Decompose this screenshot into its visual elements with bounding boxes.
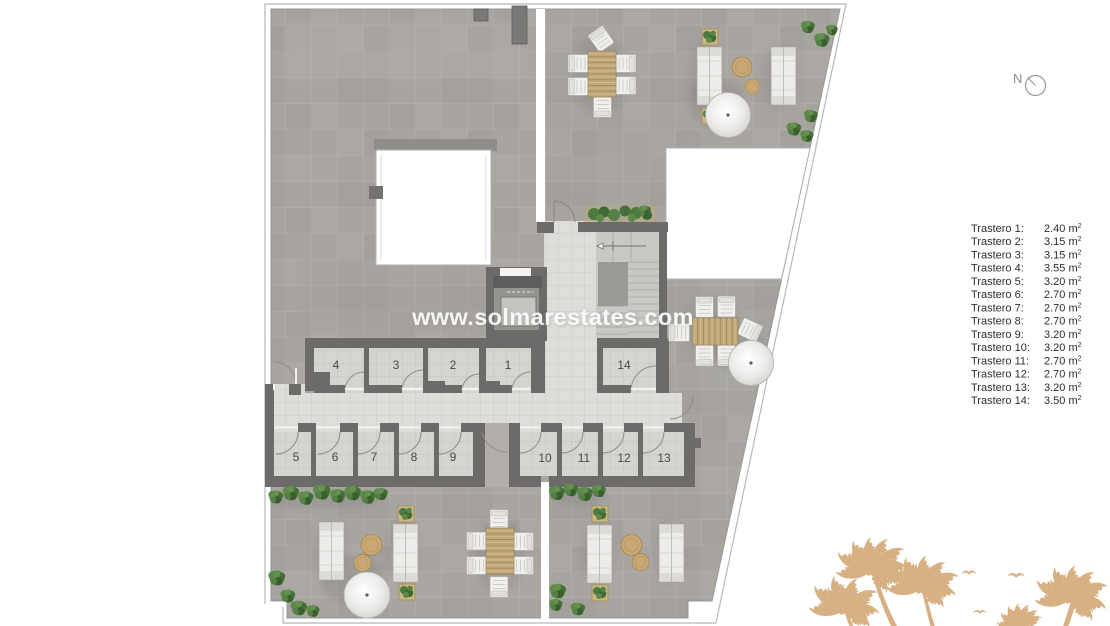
svg-text:2.70 m2: 2.70 m2: [1044, 369, 1082, 381]
svg-text:Trastero 4:: Trastero 4:: [971, 263, 1024, 275]
svg-text:Trastero 1:: Trastero 1:: [971, 223, 1024, 235]
svg-text:5: 5: [293, 450, 300, 464]
svg-text:2: 2: [450, 358, 457, 372]
svg-text:Trastero 10:: Trastero 10:: [971, 342, 1030, 354]
svg-text:www.solmarestates.com: www.solmarestates.com: [411, 304, 694, 330]
svg-text:7: 7: [371, 450, 378, 464]
svg-text:2.70 m2: 2.70 m2: [1044, 289, 1082, 301]
svg-text:8: 8: [411, 450, 418, 464]
svg-text:9: 9: [450, 450, 457, 464]
svg-text:3.20 m2: 3.20 m2: [1044, 276, 1082, 288]
svg-text:Trastero 14:: Trastero 14:: [971, 395, 1030, 407]
svg-text:13: 13: [657, 451, 671, 465]
svg-text:N: N: [1013, 71, 1022, 86]
svg-text:3.20 m2: 3.20 m2: [1044, 329, 1082, 341]
svg-text:14: 14: [617, 358, 631, 372]
svg-text:Trastero 7:: Trastero 7:: [971, 302, 1024, 314]
svg-text:3.20 m2: 3.20 m2: [1044, 382, 1082, 394]
svg-text:Trastero 12:: Trastero 12:: [971, 369, 1030, 381]
svg-text:3.55 m2: 3.55 m2: [1044, 263, 1082, 275]
svg-text:2.70 m2: 2.70 m2: [1044, 302, 1082, 314]
svg-text:Trastero 3:: Trastero 3:: [971, 250, 1024, 262]
svg-text:3.50 m2: 3.50 m2: [1044, 395, 1082, 407]
svg-text:11: 11: [578, 451, 591, 465]
svg-text:2.40 m2: 2.40 m2: [1044, 223, 1082, 235]
svg-text:3.15 m2: 3.15 m2: [1044, 236, 1082, 248]
svg-text:4: 4: [333, 358, 340, 372]
svg-text:Trastero 5:: Trastero 5:: [971, 276, 1024, 288]
svg-text:1: 1: [505, 358, 512, 372]
svg-text:Trastero 2:: Trastero 2:: [971, 236, 1024, 248]
svg-text:12: 12: [617, 451, 631, 465]
svg-text:3.15 m2: 3.15 m2: [1044, 250, 1082, 262]
svg-text:10: 10: [538, 451, 552, 465]
svg-text:3.20 m2: 3.20 m2: [1044, 342, 1082, 354]
svg-text:Trastero 9:: Trastero 9:: [971, 329, 1024, 341]
svg-text:2.70 m2: 2.70 m2: [1044, 355, 1082, 367]
svg-text:2.70 m2: 2.70 m2: [1044, 316, 1082, 328]
svg-text:Trastero 6:: Trastero 6:: [971, 289, 1024, 301]
svg-text:Trastero 8:: Trastero 8:: [971, 316, 1024, 328]
svg-text:Trastero 11:: Trastero 11:: [971, 355, 1029, 367]
svg-text:3: 3: [393, 358, 400, 372]
svg-text:6: 6: [332, 450, 339, 464]
svg-text:Trastero 13:: Trastero 13:: [971, 382, 1030, 394]
